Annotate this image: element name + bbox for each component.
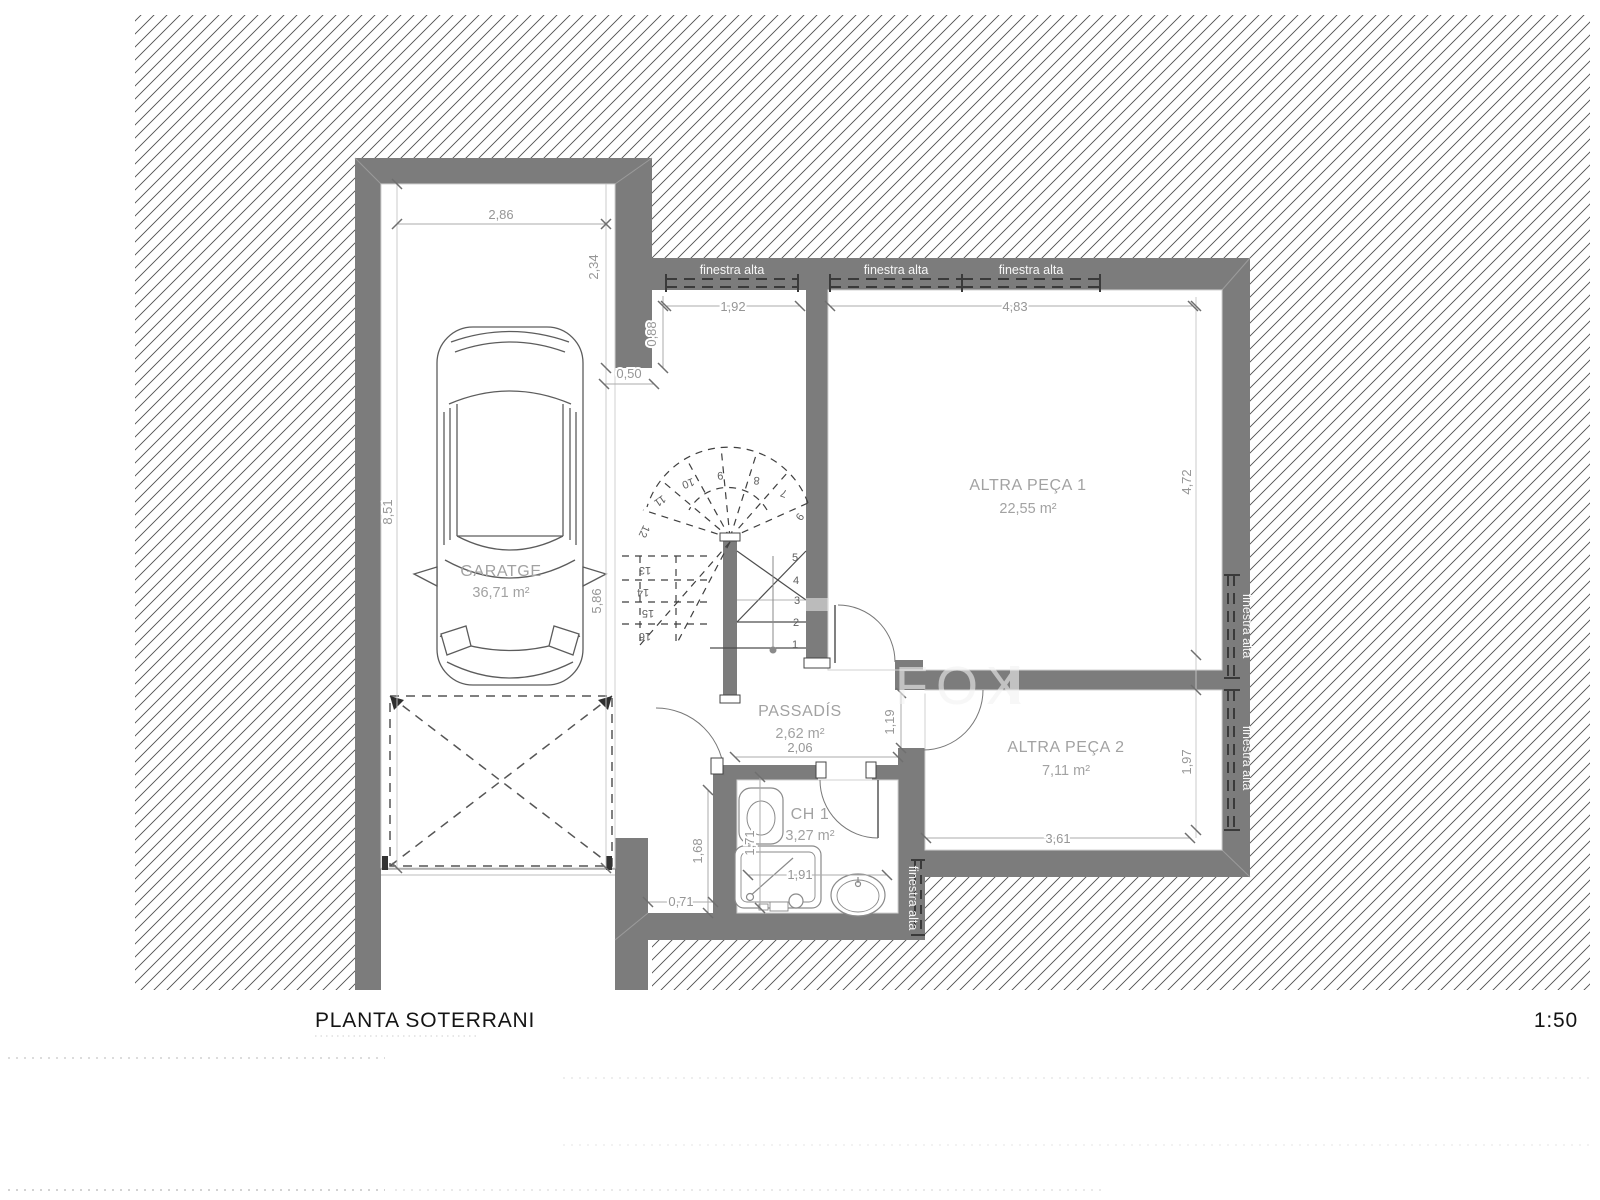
dim-setback: 0,50 <box>616 366 641 381</box>
stair-pole <box>723 540 737 702</box>
dim-window1-offset: 0,88 <box>644 321 659 346</box>
watermark-text: FOX <box>895 656 1030 716</box>
window-label: finestra alta <box>1240 594 1254 659</box>
step-number: 15 <box>642 607 654 619</box>
wall-bath-left <box>713 765 737 913</box>
dim-corridor-span: 2,06 <box>787 740 812 755</box>
room-garatge-area: 36,71 m² <box>472 585 529 601</box>
dim-room2-width: 3,61 <box>1045 831 1070 846</box>
dim-garage-width: 2,86 <box>488 207 513 222</box>
sink <box>831 874 885 916</box>
dim-room2-depth: 1,97 <box>1179 749 1194 774</box>
wall-bottom-right <box>925 850 1250 877</box>
handrail-post <box>770 647 777 654</box>
step-number: 8 <box>753 474 760 486</box>
room-passadis-name: PASSADÍS <box>758 701 842 720</box>
step-number: 14 <box>637 586 649 598</box>
room-ch1-area: 3,27 m² <box>785 828 834 844</box>
footer-dotted-lines <box>8 1058 1592 1190</box>
dim-top-span: 4,83 <box>1002 299 1027 314</box>
wall-garage-top <box>355 158 652 184</box>
dim-garage-length: 8,51 <box>380 499 395 524</box>
dim-nook-depth: 1,68 <box>690 838 705 863</box>
dim-bath-width: 1,91 <box>787 867 812 882</box>
step-number: 1 <box>792 639 798 651</box>
step-number: 13 <box>639 564 651 576</box>
floor-plan-page: finestra alta finestra alta finestra alt… <box>0 0 1600 1200</box>
window-label: finestra alta <box>864 263 929 277</box>
wall-bottom-stub <box>615 838 648 990</box>
window-label: finestra alta <box>906 866 920 931</box>
plan-scale: 1:50 <box>1534 1009 1578 1032</box>
wall-garage-left <box>355 158 381 990</box>
room-passadis-area: 2,62 m² <box>775 726 824 742</box>
dim-room1-depth: 4,72 <box>1179 469 1194 494</box>
room-altra1-area: 22,55 m² <box>999 501 1056 517</box>
dim-nook-width: 0,71 <box>668 894 693 909</box>
plan-title: PLANTA SOTERRANI <box>315 1009 535 1032</box>
wall-bath-top-a <box>713 765 818 780</box>
room-altra2-area: 7,11 m² <box>1042 763 1090 779</box>
title-block: PLANTA SOTERRANI 1:50 <box>315 1009 1578 1036</box>
step-number: 16 <box>639 630 651 642</box>
dim-garage-return: 2,34 <box>586 254 601 279</box>
step-number: 3 <box>794 595 800 607</box>
dim-stair-bay: 5,86 <box>589 588 604 613</box>
room-altra1-name: ALTRA PEÇA 1 <box>969 477 1086 494</box>
wall-bath-bottom <box>615 913 925 940</box>
room-ch1-name: CH 1 <box>791 806 830 823</box>
dim-window1-width: 1,92 <box>720 299 745 314</box>
room-garatge-name: GARATGE <box>460 563 541 580</box>
window-label: finestra alta <box>1240 726 1254 791</box>
step-number: 9 <box>717 469 724 481</box>
room-altra2-name: ALTRA PEÇA 2 <box>1007 739 1124 756</box>
floor-plan-drawing: finestra alta finestra alta finestra alt… <box>0 0 1600 1200</box>
window-label: finestra alta <box>700 263 765 277</box>
step-number: 4 <box>793 575 799 587</box>
window-label: finestra alta <box>999 263 1064 277</box>
dim-bath-depth: 1,71 <box>742 830 757 855</box>
step-number: 2 <box>793 617 799 629</box>
step-number: 5 <box>792 552 798 564</box>
